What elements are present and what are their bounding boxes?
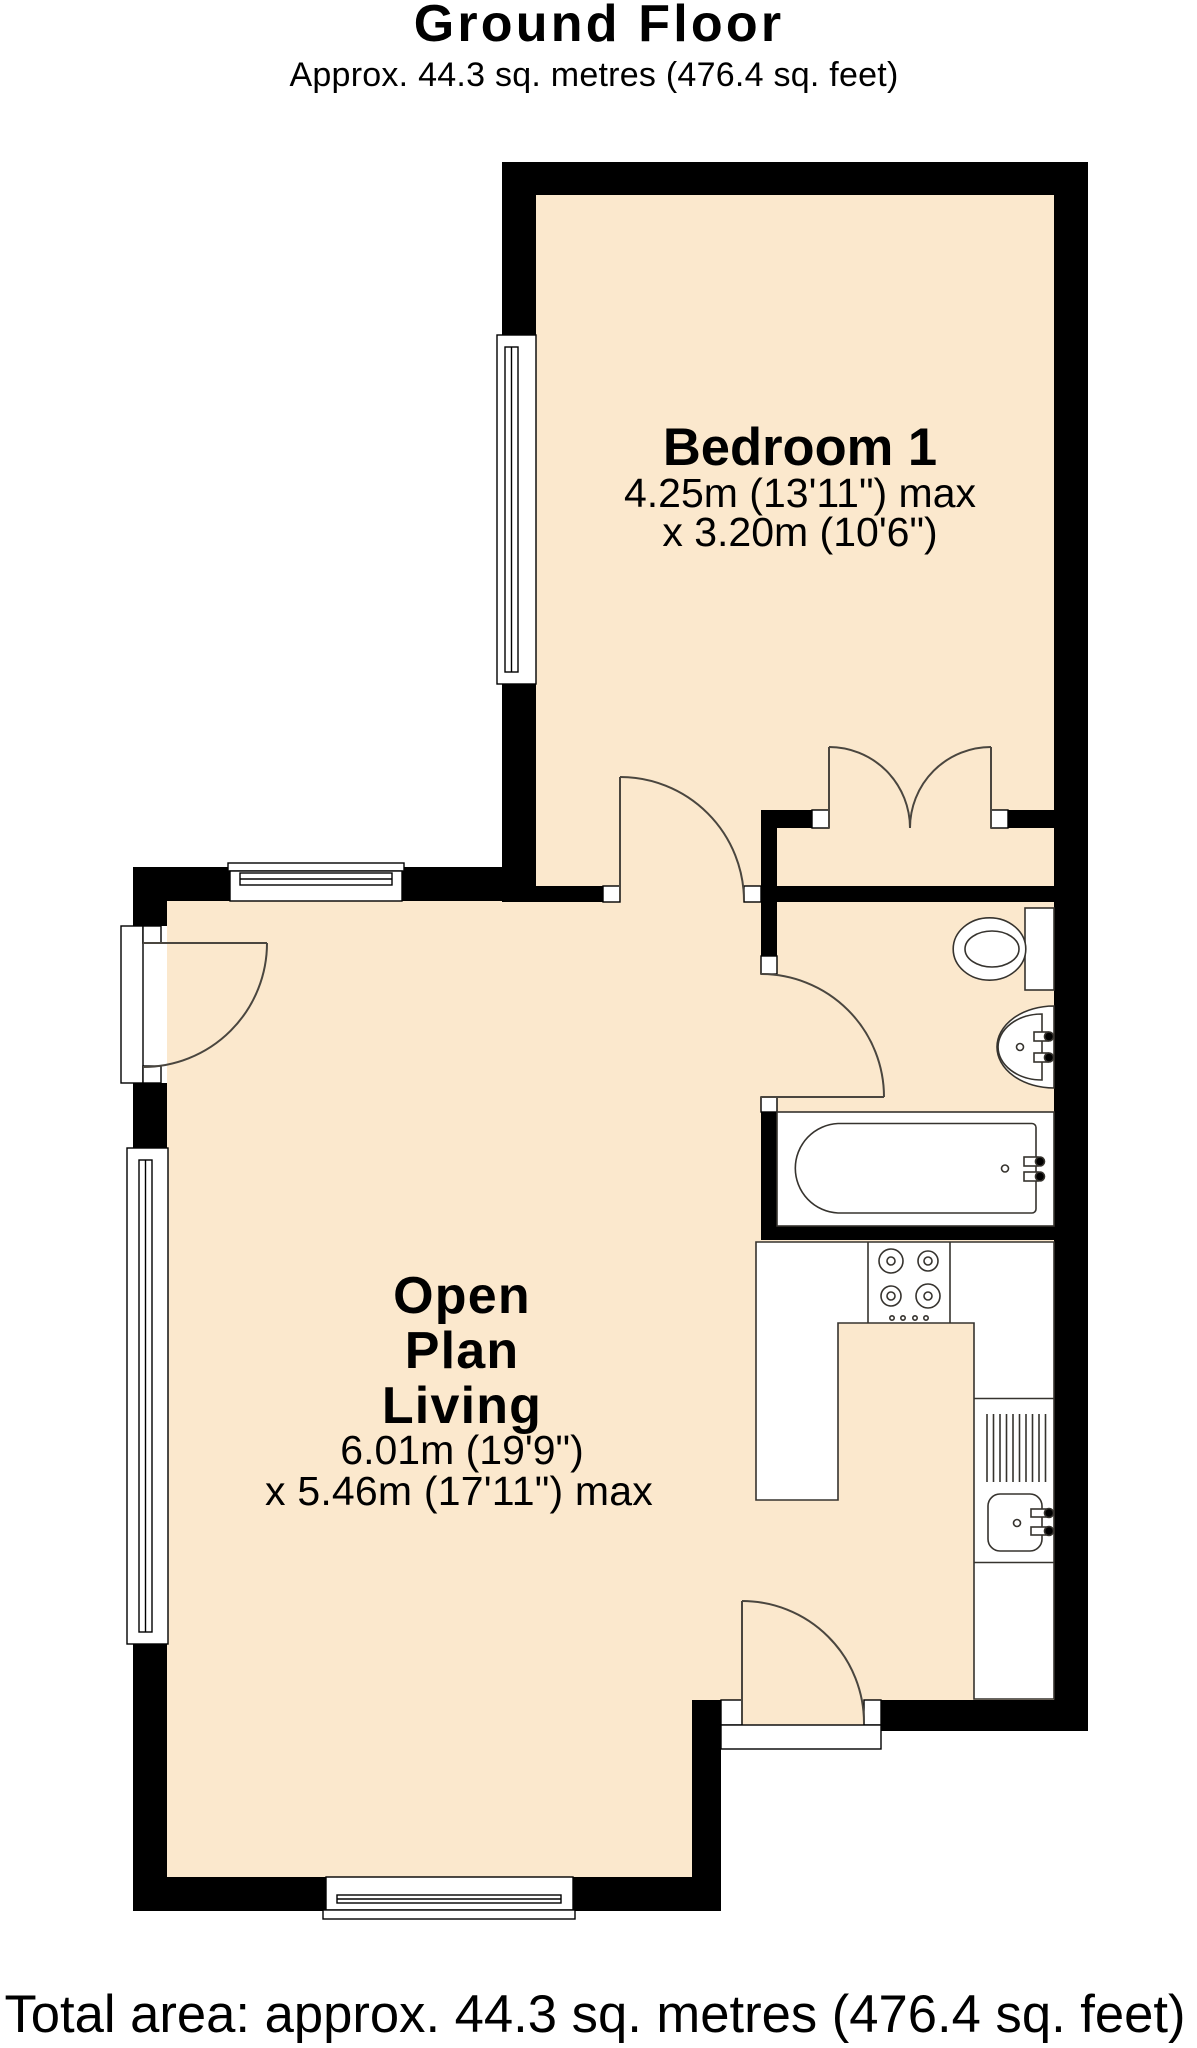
svg-text:Total area: approx. 44.3 sq. m: Total area: approx. 44.3 sq. metres (476… [4, 1985, 1185, 2044]
svg-text:6.01m (19'9"): 6.01m (19'9") [340, 1427, 583, 1473]
svg-text:Approx. 44.3 sq. metres (476.4: Approx. 44.3 sq. metres (476.4 sq. feet) [289, 56, 898, 94]
svg-text:Ground Floor: Ground Floor [414, 0, 785, 53]
svg-text:Plan: Plan [405, 1322, 520, 1380]
svg-text:Open: Open [393, 1267, 531, 1325]
svg-text:Bedroom 1: Bedroom 1 [663, 418, 937, 477]
svg-text:x 3.20m (10'6"): x 3.20m (10'6") [662, 509, 937, 555]
svg-text:x 5.46m (17'11") max: x 5.46m (17'11") max [265, 1468, 653, 1514]
